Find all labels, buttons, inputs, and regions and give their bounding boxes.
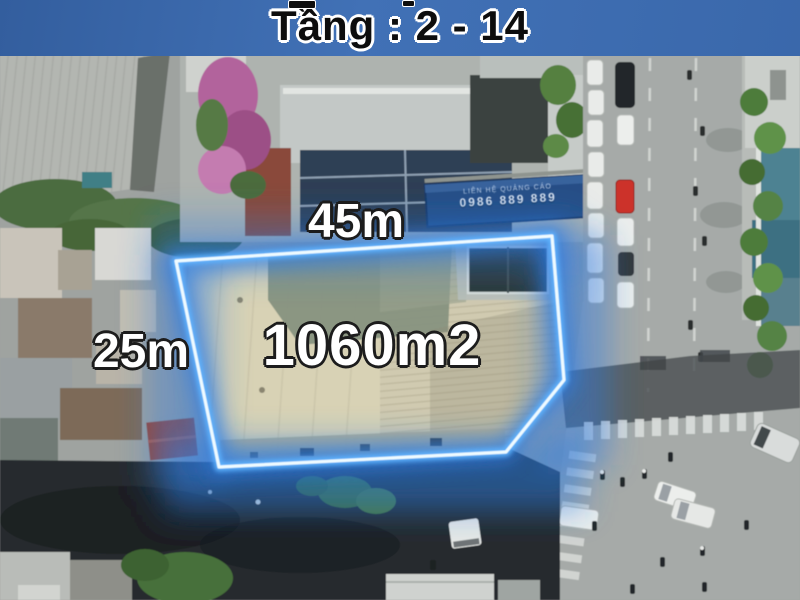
width-dimension-label: 45m (308, 194, 404, 249)
floor-range-title: Tầng : 2 - 14 (0, 2, 800, 50)
depth-dimension-label: 25m (93, 324, 189, 379)
aerial-property-photo: LIÊN HỆ QUẢNG CÁO 0986 889 889 45m 25m 1… (0, 0, 800, 600)
cropped-text-fragment (288, 0, 316, 9)
area-label: 1060m2 (263, 312, 482, 379)
aerial-scene (0, 0, 800, 600)
cropped-text-fragment (402, 0, 415, 7)
floor-range-banner: Tầng : 2 - 14 (0, 0, 800, 56)
